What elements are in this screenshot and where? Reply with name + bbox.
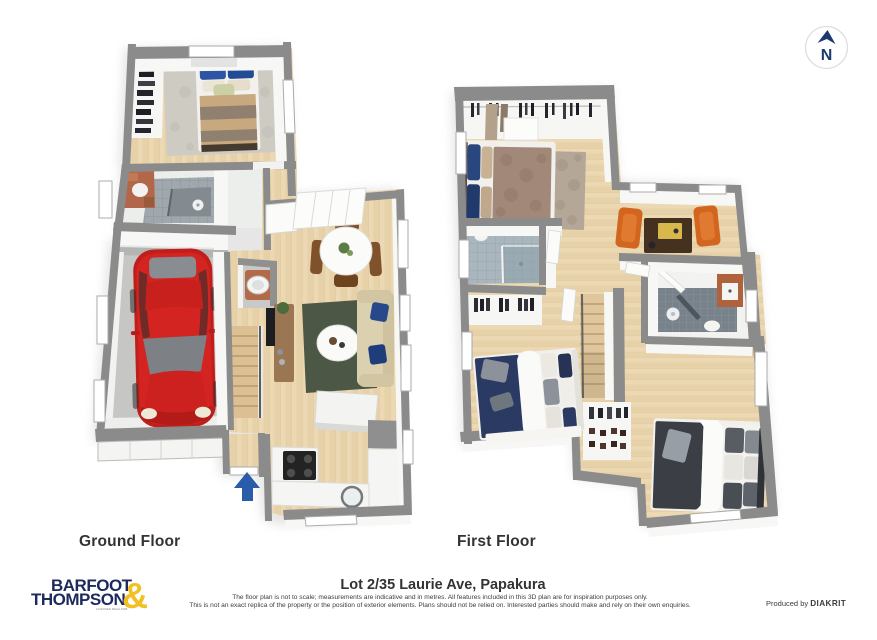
svg-text:Produced by DIAKRIT: Produced by DIAKRIT bbox=[766, 599, 846, 608]
svg-text:First Floor: First Floor bbox=[457, 533, 536, 550]
svg-text:The floor plan is not to scale: The floor plan is not to scale; measurem… bbox=[232, 594, 648, 601]
svg-text:This is not an exact replica o: This is not an exact replica of the prop… bbox=[189, 602, 691, 609]
svg-text:Ground Floor: Ground Floor bbox=[79, 533, 180, 550]
svg-text:Lot 2/35 Laurie Ave, Papakura: Lot 2/35 Laurie Ave, Papakura bbox=[340, 577, 546, 593]
svg-text:LICENSED REAA 2008: LICENSED REAA 2008 bbox=[96, 607, 128, 611]
svg-text:N: N bbox=[821, 47, 833, 64]
